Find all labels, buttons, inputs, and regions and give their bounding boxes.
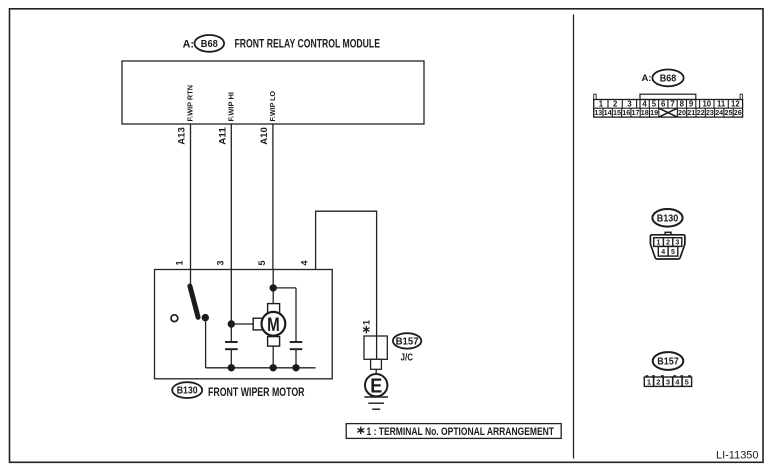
svg-text:1: 1 bbox=[362, 320, 372, 325]
svg-text:9: 9 bbox=[689, 99, 694, 108]
svg-text:2: 2 bbox=[613, 99, 618, 108]
svg-text:F.WIP HI: F.WIP HI bbox=[226, 92, 235, 122]
svg-text:3: 3 bbox=[675, 240, 679, 247]
svg-text:A:: A: bbox=[183, 38, 194, 50]
svg-text:E: E bbox=[370, 375, 382, 397]
svg-text:A13: A13 bbox=[177, 127, 187, 145]
svg-text:25: 25 bbox=[725, 108, 733, 117]
svg-text:4: 4 bbox=[300, 260, 310, 265]
svg-text:26: 26 bbox=[734, 108, 742, 117]
svg-text:M: M bbox=[267, 315, 280, 336]
svg-text:8: 8 bbox=[680, 99, 685, 108]
svg-text:13: 13 bbox=[594, 108, 602, 117]
svg-text:4: 4 bbox=[642, 99, 647, 108]
svg-text:LI-11350: LI-11350 bbox=[716, 450, 759, 462]
svg-text:14: 14 bbox=[604, 108, 612, 117]
svg-text:18: 18 bbox=[641, 108, 649, 117]
svg-text:11: 11 bbox=[717, 99, 726, 108]
svg-text:FRONT RELAY CONTROL MODULE: FRONT RELAY CONTROL MODULE bbox=[235, 38, 381, 50]
svg-text:1: 1 bbox=[599, 99, 604, 108]
svg-text:5: 5 bbox=[257, 260, 267, 265]
svg-text:20: 20 bbox=[678, 108, 686, 117]
svg-text:F.WIP LO: F.WIP LO bbox=[268, 91, 277, 122]
svg-text:1: 1 bbox=[657, 240, 661, 247]
svg-text:21: 21 bbox=[687, 108, 695, 117]
svg-text:4: 4 bbox=[661, 249, 665, 256]
svg-text:6: 6 bbox=[661, 99, 666, 108]
svg-text:12: 12 bbox=[731, 99, 740, 108]
svg-text:A:: A: bbox=[642, 73, 652, 84]
svg-text:1: 1 bbox=[175, 260, 185, 265]
svg-text:A11: A11 bbox=[217, 127, 227, 145]
svg-text:24: 24 bbox=[715, 108, 723, 117]
svg-text:1 : TERMINAL No. OPTIONAL ARRA: 1 : TERMINAL No. OPTIONAL ARRANGEMENT bbox=[367, 426, 555, 438]
svg-text:B130: B130 bbox=[177, 386, 198, 397]
svg-text:5: 5 bbox=[652, 99, 657, 108]
svg-text:J/C: J/C bbox=[401, 353, 414, 364]
svg-text:5: 5 bbox=[685, 377, 689, 386]
svg-text:3: 3 bbox=[215, 260, 225, 265]
svg-text:B68: B68 bbox=[660, 73, 677, 84]
svg-text:1: 1 bbox=[647, 377, 651, 386]
svg-text:3: 3 bbox=[666, 377, 670, 386]
svg-text:2: 2 bbox=[666, 240, 670, 247]
svg-text:17: 17 bbox=[632, 108, 640, 117]
svg-text:B130: B130 bbox=[657, 213, 679, 224]
svg-text:19: 19 bbox=[650, 108, 658, 117]
svg-text:B68: B68 bbox=[201, 39, 219, 50]
svg-text:2: 2 bbox=[656, 377, 660, 386]
svg-text:3: 3 bbox=[627, 99, 632, 108]
svg-text:A10: A10 bbox=[259, 127, 269, 145]
svg-text:B157: B157 bbox=[396, 336, 420, 347]
svg-text:16: 16 bbox=[622, 108, 630, 117]
svg-text:22: 22 bbox=[697, 108, 705, 117]
svg-text:F.WIP RTN: F.WIP RTN bbox=[186, 85, 195, 122]
svg-text:B157: B157 bbox=[657, 357, 679, 368]
svg-text:FRONT WIPER MOTOR: FRONT WIPER MOTOR bbox=[208, 387, 305, 399]
svg-text:5: 5 bbox=[671, 249, 675, 256]
svg-text:7: 7 bbox=[670, 99, 674, 108]
svg-text:10: 10 bbox=[702, 99, 711, 108]
svg-text:4: 4 bbox=[675, 377, 680, 386]
svg-text:15: 15 bbox=[613, 108, 621, 117]
svg-text:23: 23 bbox=[706, 108, 714, 117]
